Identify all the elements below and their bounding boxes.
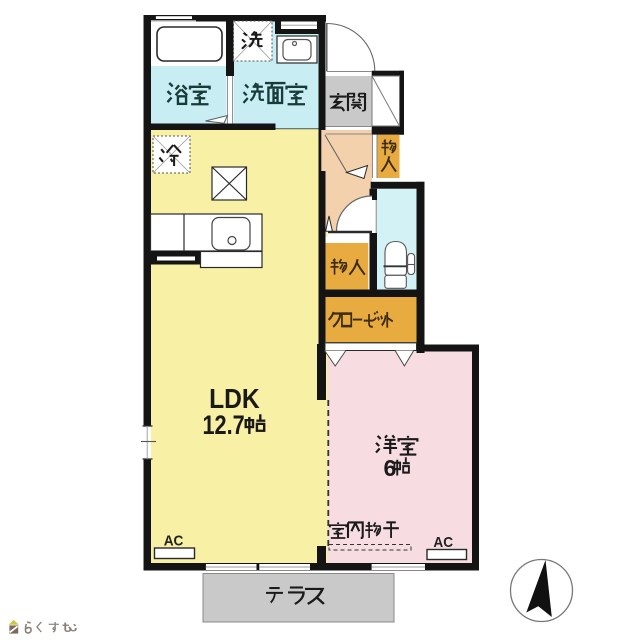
svg-text:12.7: 12.7 xyxy=(203,410,245,440)
svg-text:AC: AC xyxy=(433,534,453,551)
svg-text:AC: AC xyxy=(164,532,184,549)
